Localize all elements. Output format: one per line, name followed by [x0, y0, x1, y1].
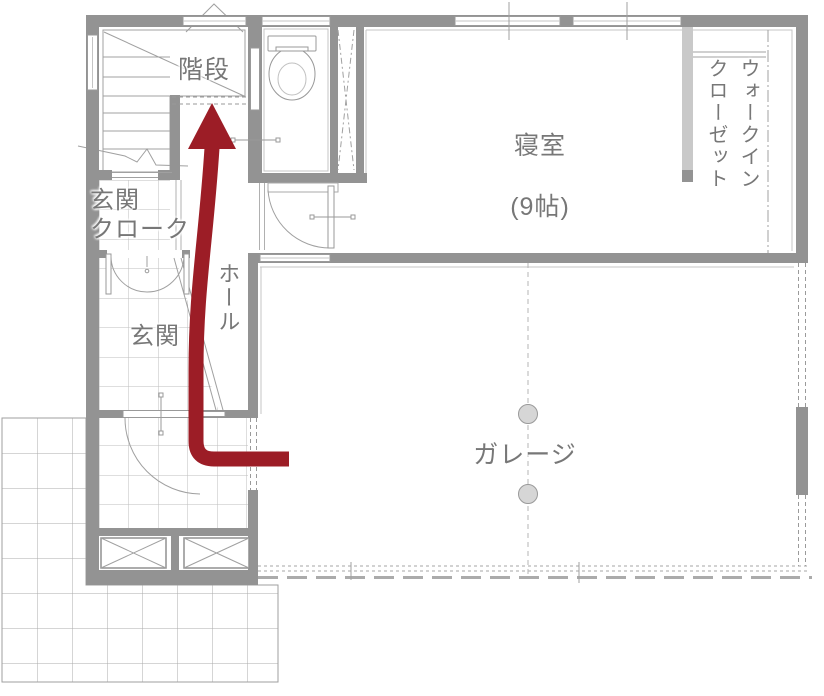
bedroom-label-size: (9帖)	[510, 193, 570, 221]
flow-arrow-head	[188, 103, 236, 149]
walk-in-closet-label: ウォークイン クローゼット	[700, 58, 764, 218]
entrance-cloak-label: 玄関 クローク	[90, 186, 190, 245]
toilet-fixture	[268, 36, 316, 100]
stairs-hall-boundary	[172, 97, 247, 104]
garage-post	[519, 485, 538, 504]
bedroom-door	[260, 183, 356, 250]
hall-label: ホール	[210, 262, 245, 352]
floor-plan: 階段 寝室 (9帖) ウォークイン クローゼット 玄関 クローク ホール 玄関 …	[0, 0, 824, 696]
garage-centerline	[519, 263, 538, 576]
stairs-label: 階段	[178, 55, 230, 86]
closet-partition-wall	[682, 27, 693, 170]
garage-label: ガレージ	[455, 440, 595, 471]
entrance-label: 玄関	[130, 322, 180, 351]
toilet-sliding-door	[251, 48, 260, 110]
pipe-shaft	[338, 30, 354, 170]
bedroom-label-name: 寝室	[514, 132, 566, 160]
garage-post	[519, 405, 538, 424]
bedroom-label: 寝室 (9帖)	[470, 100, 610, 222]
